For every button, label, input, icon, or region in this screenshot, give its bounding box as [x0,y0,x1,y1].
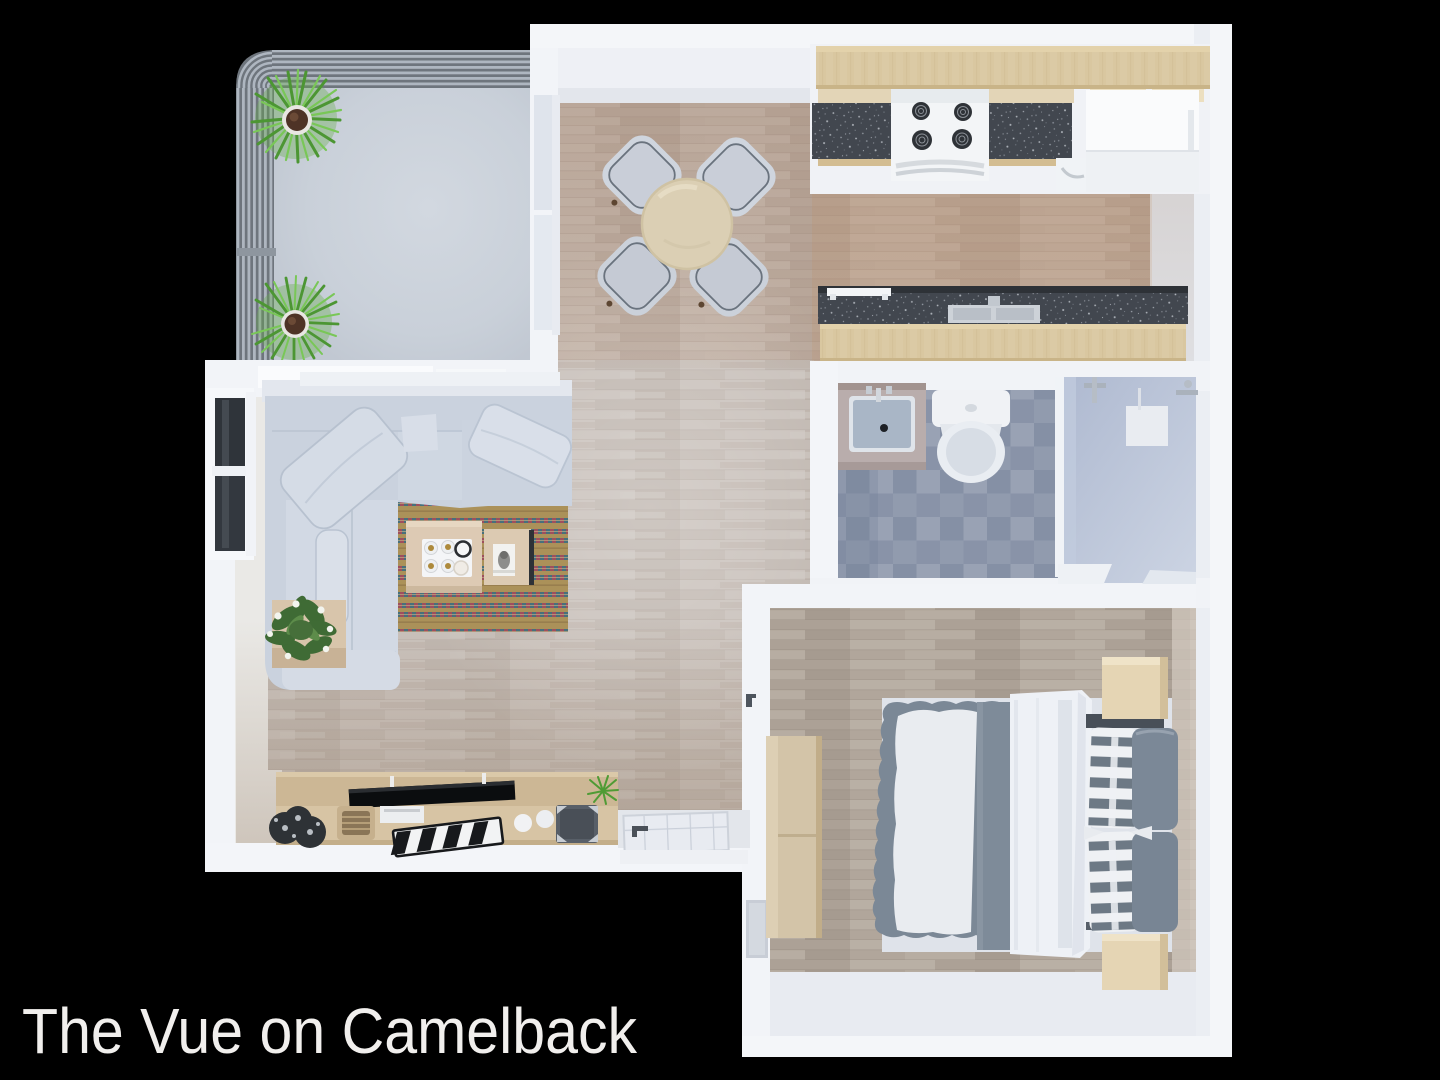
svg-text:The Vue on Camelback: The Vue on Camelback [22,995,638,1067]
